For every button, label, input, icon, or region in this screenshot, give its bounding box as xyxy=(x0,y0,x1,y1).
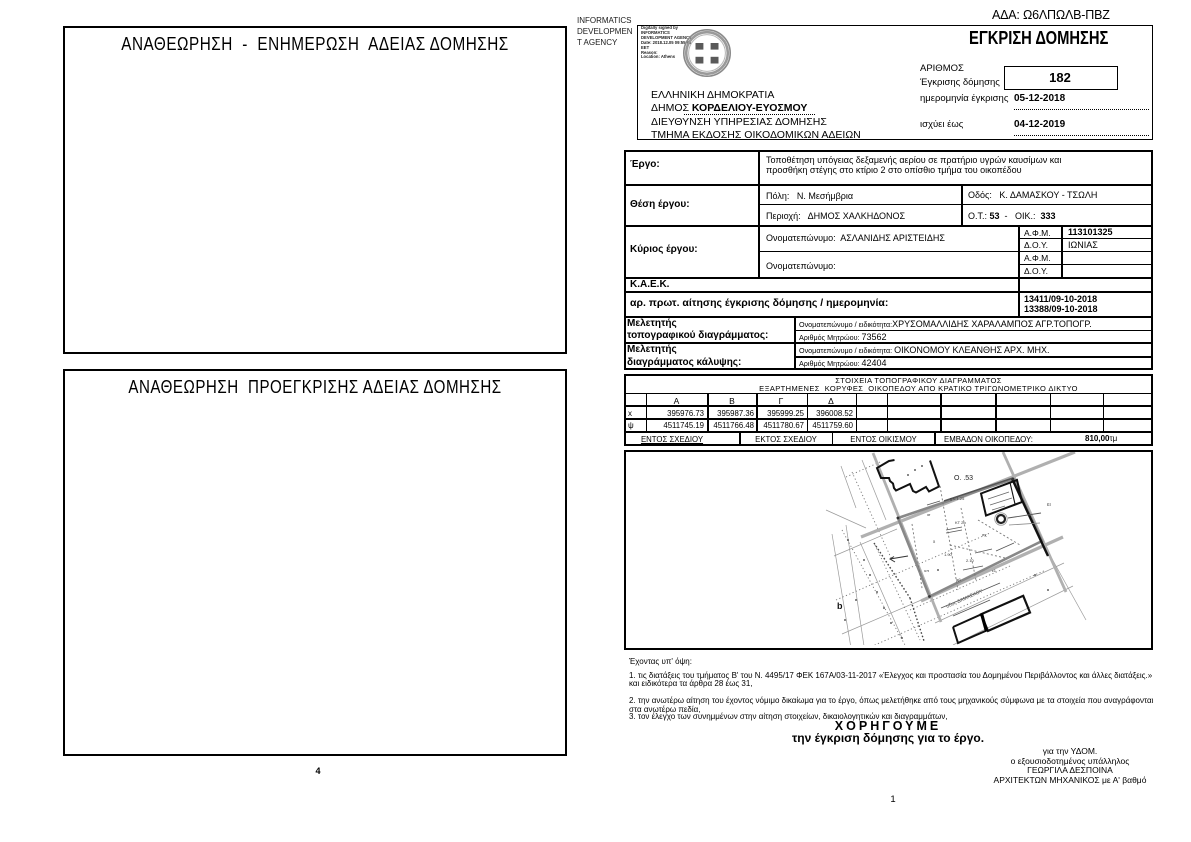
svg-text:ει: ει xyxy=(1047,502,1051,508)
svg-text:σχ: σχ xyxy=(982,532,987,537)
svg-text:οδος ΔΑΜΑΣΚΟΥ: οδος ΔΑΜΑΣΚΟΥ xyxy=(945,588,984,610)
svg-text:2.10: 2.10 xyxy=(966,558,975,563)
svg-text:b: b xyxy=(837,601,843,611)
svg-text:υπ: υπ xyxy=(924,568,929,573)
svg-text:χ.υ 1.25: χ.υ 1.25 xyxy=(950,496,965,501)
svg-text:δ: δ xyxy=(933,539,936,544)
svg-text:ΚΤ 2α: ΚΤ 2α xyxy=(955,520,966,525)
svg-text:1.90: 1.90 xyxy=(944,552,953,557)
svg-text:Ο. .53: Ο. .53 xyxy=(954,475,973,482)
svg-text:ισ: ισ xyxy=(927,512,931,517)
svg-text:αβ: αβ xyxy=(956,577,961,582)
